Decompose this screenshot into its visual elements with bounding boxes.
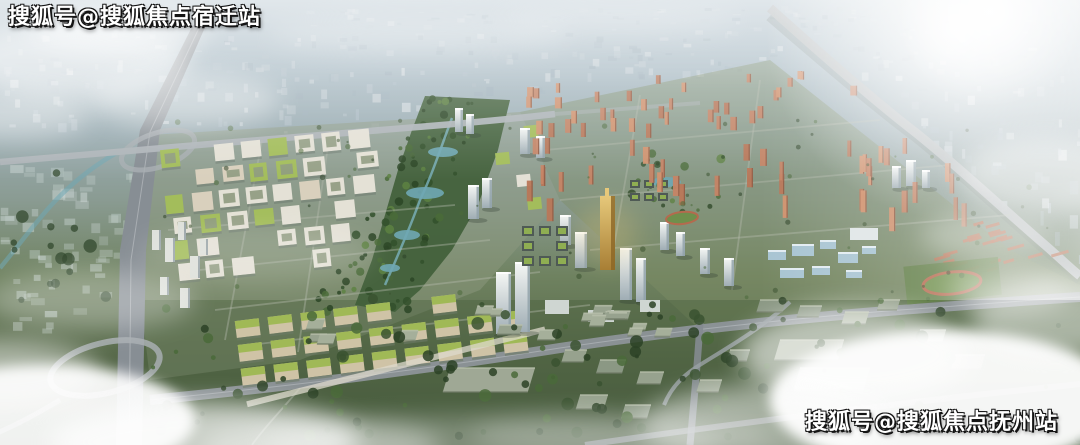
aerial-city-render: 搜狐号@搜狐焦点宿迁站 搜狐号@搜狐焦点抚州站 bbox=[0, 0, 1080, 445]
city-render-canvas bbox=[0, 0, 1080, 445]
watermark-top-left: 搜狐号@搜狐焦点宿迁站 bbox=[8, 7, 261, 29]
watermark-bottom-right: 搜狐号@搜狐焦点抚州站 bbox=[805, 412, 1058, 434]
